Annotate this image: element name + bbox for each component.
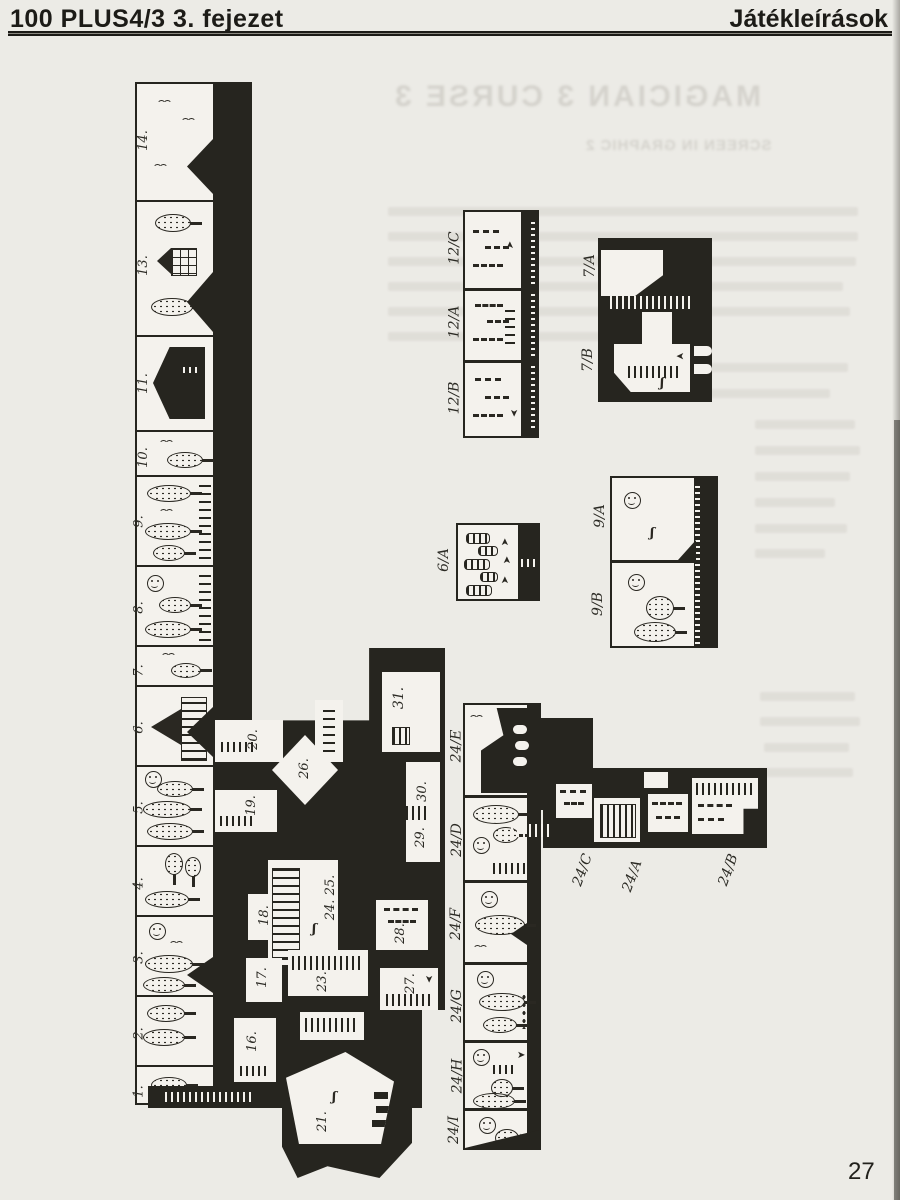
ladder-icon	[610, 296, 690, 309]
ladder-bridge	[352, 806, 430, 820]
platform-icon	[466, 585, 492, 596]
ghost-text-line	[388, 207, 858, 216]
dungeon-room	[648, 794, 688, 832]
door-notch	[374, 1092, 388, 1099]
dungeon-room-16: 16.	[234, 1018, 276, 1082]
map-block-9: ʃ	[610, 476, 718, 648]
terrain-wedge	[187, 272, 213, 332]
ladder-icon	[644, 312, 670, 320]
bird-icon	[159, 440, 174, 448]
room-number: 23.	[315, 971, 330, 992]
sun-face-icon	[481, 891, 498, 908]
room-number: 6.	[132, 721, 147, 733]
map-left-column: 14. 13. 11. 10.	[135, 82, 215, 1105]
sun-face-icon	[147, 575, 164, 592]
tree-icon	[165, 853, 183, 875]
arrow-icon: ➤	[654, 256, 662, 266]
ladder-icon	[221, 742, 255, 752]
cave-notch	[513, 757, 527, 766]
platform-icon	[652, 802, 682, 805]
ladder-icon	[305, 1018, 359, 1032]
room-label: 24/F	[448, 908, 464, 940]
dungeon-room-19: 19.	[215, 790, 277, 832]
ladder-icon	[628, 366, 680, 378]
wall-ticks	[531, 220, 535, 428]
dungeon-room-28: 28.	[376, 900, 428, 950]
room-label: 7/B	[580, 348, 596, 372]
ghost-text-line	[764, 743, 849, 752]
flowers-icon	[521, 993, 527, 1029]
scan-edge-shadow	[894, 420, 900, 1200]
figure-icon: ʃ	[660, 376, 664, 391]
dungeon-room-17: 17.	[246, 958, 282, 1002]
tree-icon	[155, 214, 191, 232]
tree-icon	[473, 805, 519, 824]
window-icon	[521, 559, 535, 567]
tree-icon	[145, 891, 189, 908]
divider	[465, 962, 539, 965]
ladder-icon	[165, 1092, 255, 1102]
ghost-text-line	[755, 472, 850, 481]
tree-icon	[185, 857, 201, 877]
map-room: 10.	[137, 432, 213, 477]
platform-icon	[473, 264, 503, 267]
ghost-text-line	[755, 420, 855, 429]
room-number: 7.	[132, 664, 147, 676]
room-number: 11.	[136, 373, 151, 394]
house-roof-icon	[157, 248, 171, 274]
ghost-text-line	[760, 692, 855, 701]
map-room: 5.	[137, 767, 213, 847]
tree-icon	[157, 781, 193, 797]
room-number: 9.	[132, 515, 147, 527]
platform-icon	[560, 790, 586, 793]
room-label: 24/B	[715, 852, 741, 888]
map-strip-24: ➤ ➤	[463, 703, 541, 1150]
ladder-icon	[272, 868, 300, 960]
room-number: 29.	[413, 827, 428, 848]
sun-face-icon	[473, 837, 490, 854]
room-number: 8.	[132, 601, 147, 613]
room-number: 24. 25.	[323, 875, 338, 920]
tree-icon	[479, 993, 525, 1011]
sun-face-icon	[624, 492, 641, 509]
ghost-text-line	[758, 768, 853, 777]
platform-icon	[656, 816, 680, 819]
arrow-icon: ➤	[517, 1051, 525, 1061]
room-number: 30.	[415, 781, 430, 802]
ladder-icon	[511, 824, 549, 837]
bird-icon	[169, 941, 184, 949]
platform-icon	[464, 559, 490, 570]
tree-icon	[473, 1093, 515, 1109]
room-number: 28.	[393, 923, 408, 944]
tree-icon	[646, 596, 674, 620]
tree-icon	[147, 485, 191, 502]
ladder-icon	[596, 776, 630, 792]
ghost-title: MAGICIAN 3 CURSE 3	[392, 80, 761, 114]
cave-notch	[513, 725, 527, 734]
room-number: 10.	[136, 447, 151, 468]
bird-icon	[157, 100, 172, 108]
platform-icon	[698, 818, 724, 821]
ladder-icon	[292, 956, 362, 970]
room-label: 12/B	[446, 382, 462, 415]
church-spire-icon	[151, 709, 181, 745]
room-number: 4.	[132, 877, 147, 889]
sun-face-icon	[149, 923, 166, 940]
dungeon-shaft	[315, 700, 343, 762]
room-label: 9/B	[590, 592, 606, 616]
map-room: 4.	[137, 847, 213, 917]
room-number: 13.	[136, 255, 151, 276]
room-label: 7/A	[582, 254, 598, 278]
room-number: 31.	[391, 687, 407, 709]
map-strip-12: ➤ ➤	[463, 210, 539, 438]
dungeon-room	[594, 798, 640, 842]
sun-face-icon	[477, 971, 494, 988]
map-room: 14.	[137, 84, 213, 202]
bird-icon	[159, 509, 174, 517]
divider	[612, 560, 716, 563]
divider	[465, 1040, 539, 1043]
tree-icon	[145, 621, 191, 638]
figure-icon: ʃ	[332, 1090, 336, 1105]
tree-icon	[147, 823, 193, 840]
room-number: 14.	[136, 130, 151, 151]
room-number: 1.	[132, 1085, 147, 1097]
map-block-6: ➤ ➤ ➤	[456, 523, 540, 601]
cave-notch	[694, 346, 712, 356]
ladder-icon	[696, 783, 752, 795]
arrow-icon: ➤	[676, 350, 684, 360]
tree-icon	[634, 622, 676, 642]
arrow-icon: ➤	[508, 409, 518, 417]
ladder-icon	[600, 804, 636, 838]
map-room: 7.	[137, 647, 213, 687]
ladder-icon	[386, 994, 434, 1006]
arrow-icon: ➤	[501, 538, 511, 546]
terrain-wedge	[187, 139, 213, 194]
ladder-icon	[240, 1066, 270, 1076]
door-notch	[372, 1120, 386, 1127]
room-number: 21.	[315, 1111, 330, 1132]
ghost-text-line	[755, 498, 835, 507]
room-label: 12/A	[446, 306, 462, 339]
platform-icon	[473, 414, 503, 417]
house-silhouette-icon	[153, 347, 205, 419]
fence-icon	[199, 571, 211, 641]
dungeon-room-31: 31.	[382, 672, 440, 752]
grass-ticks	[695, 484, 700, 644]
arrow-icon: ➤	[503, 556, 513, 564]
dungeon-room	[556, 784, 592, 818]
tree-icon	[143, 1029, 185, 1046]
platform-icon	[485, 396, 509, 399]
divider	[465, 795, 539, 798]
room-label: 6/A	[436, 548, 452, 572]
map-room: 8.	[137, 567, 213, 647]
platform-icon	[473, 338, 503, 341]
platform-icon	[473, 230, 499, 233]
figure-icon: ʃ	[650, 526, 654, 541]
window-icon	[392, 727, 410, 745]
window-icon	[183, 367, 199, 373]
dungeon-room-27: 27. ➤	[380, 968, 438, 1010]
platform-icon	[475, 304, 503, 307]
platform-icon	[466, 533, 490, 544]
sun-face-icon	[473, 1049, 490, 1066]
tree-icon	[167, 452, 203, 468]
dungeon-room-20: 20.	[215, 720, 283, 762]
cave-mass	[481, 708, 537, 793]
cave-notch	[644, 772, 668, 788]
platform-icon	[698, 804, 732, 807]
room-number: 19.	[244, 795, 259, 816]
room-number: 26.	[297, 758, 312, 779]
divider	[465, 288, 537, 291]
divider	[465, 880, 539, 883]
bird-icon	[469, 715, 484, 723]
ghost-subtitle: SCREEN IN GRAPHIC 2	[585, 137, 772, 154]
arrow-icon: ➤	[423, 975, 433, 983]
header-right: Játékleírások	[730, 5, 888, 34]
map-room: 2.	[137, 997, 213, 1067]
tree-icon	[143, 977, 185, 993]
platform-icon	[478, 546, 498, 556]
map-room: 13.	[137, 202, 213, 337]
tree-icon	[153, 545, 185, 561]
ghost-text-line	[755, 524, 847, 533]
map-room: 11.	[137, 337, 213, 432]
cave-notch	[515, 741, 529, 750]
tree-icon	[145, 955, 193, 973]
bird-icon	[161, 653, 176, 661]
tree-icon	[159, 597, 191, 613]
platform-icon	[384, 908, 418, 911]
platform-icon	[564, 802, 584, 805]
figure-icon: ʃ	[312, 922, 316, 937]
tree-icon	[483, 1017, 517, 1033]
ladder-icon	[493, 863, 531, 874]
platform-icon	[475, 378, 501, 381]
room-number: 27.	[403, 973, 418, 994]
ghost-text-line	[755, 446, 860, 455]
house-icon	[171, 248, 197, 276]
page-number: 27	[848, 1158, 875, 1186]
ladder-icon	[220, 816, 256, 826]
map-room: 9.	[137, 477, 213, 567]
room-number: 17.	[255, 967, 270, 988]
fence-icon	[199, 483, 211, 559]
bird-icon	[181, 118, 196, 126]
arrow-icon: ➤	[501, 576, 511, 584]
cave-notch	[694, 364, 712, 374]
ghost-text-line	[760, 717, 860, 726]
tree-icon	[171, 663, 201, 678]
sun-face-icon	[628, 574, 645, 591]
ladder-icon	[505, 304, 515, 344]
room-label: 24/E	[448, 730, 464, 763]
room-label: 24/A	[619, 858, 645, 894]
tree-icon	[147, 1005, 185, 1022]
room-label: 24/I	[446, 1116, 462, 1144]
sun-face-icon	[479, 1117, 496, 1134]
header-rule	[8, 31, 892, 36]
dungeon-corridor	[300, 1012, 364, 1040]
map-block-7: ➤ ʃ ➤	[598, 238, 712, 402]
bird-icon	[473, 945, 488, 953]
ladder-icon	[323, 708, 335, 752]
divider	[465, 360, 537, 363]
map-room: 6.	[137, 687, 213, 767]
room-label: 9/A	[592, 504, 608, 528]
ghost-text-line	[755, 549, 825, 558]
header-left: 100 PLUS4/3 3. fejezet	[10, 5, 284, 34]
room-label: 24/C	[569, 852, 595, 889]
tree-icon	[151, 298, 193, 316]
scanned-page: 100 PLUS4/3 3. fejezet Játékleírások MAG…	[0, 0, 900, 1200]
platform-icon	[480, 572, 498, 582]
arrow-icon: ➤	[506, 241, 516, 249]
dungeon-room-23: 23.	[288, 950, 368, 996]
tree-icon	[145, 523, 191, 540]
bird-icon	[153, 164, 168, 172]
room-number: 16.	[245, 1031, 260, 1052]
room-label: 12/C	[447, 231, 463, 264]
map-room: 3.	[137, 917, 213, 997]
tree-icon	[143, 801, 191, 818]
ladder-icon	[493, 1065, 517, 1074]
